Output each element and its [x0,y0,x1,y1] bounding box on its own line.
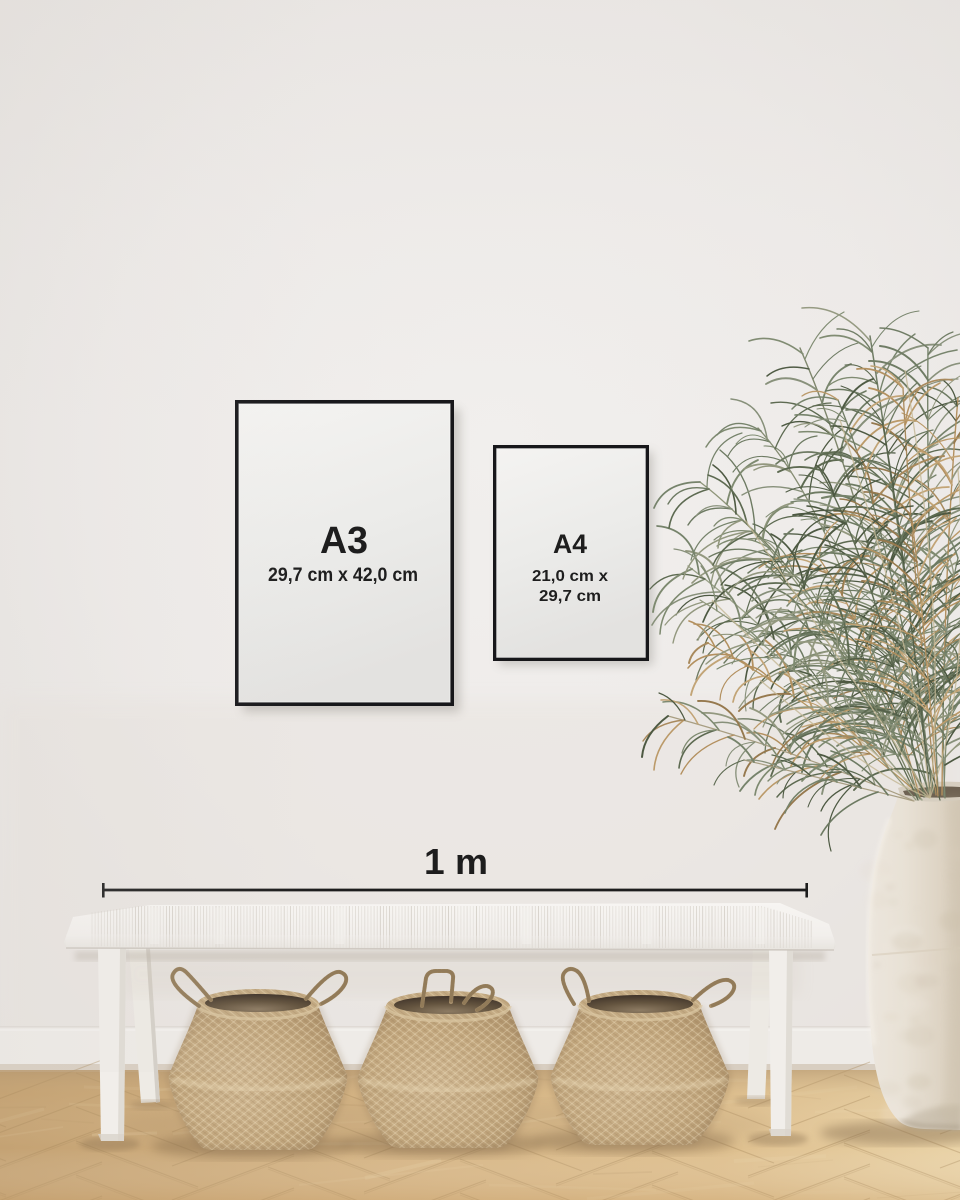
svg-text:A4: A4 [553,529,587,559]
svg-text:21,0 cm x: 21,0 cm x [532,568,608,585]
svg-text:29,7 cm: 29,7 cm [539,588,601,605]
svg-text:1 m: 1 m [424,841,488,882]
svg-text:A3: A3 [320,520,368,562]
